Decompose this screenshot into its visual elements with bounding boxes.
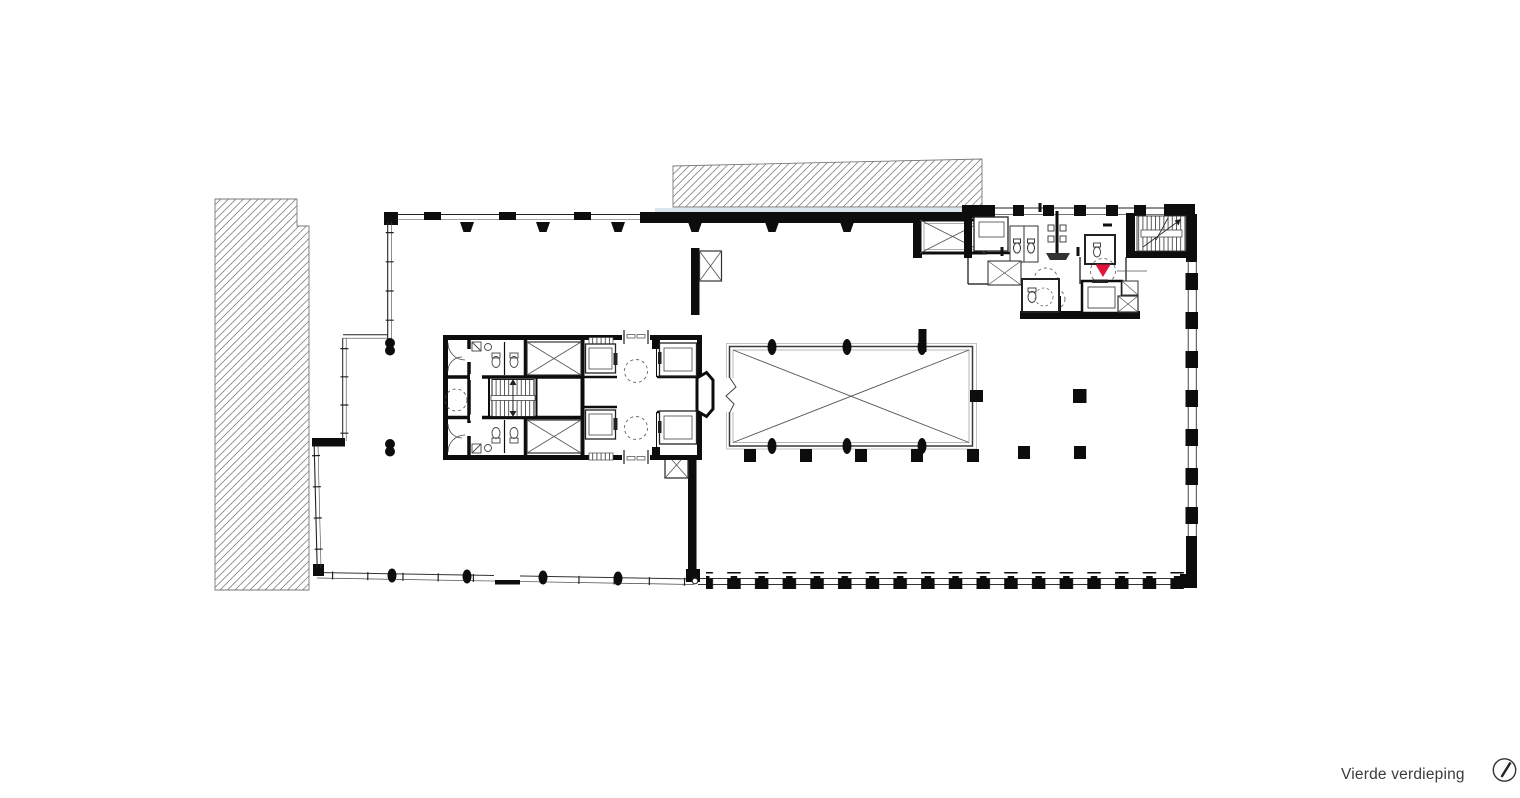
secondary-core (913, 203, 1190, 319)
east-facade (1186, 214, 1199, 588)
secondary-staircase (1126, 213, 1190, 258)
floor-plan-page: Vierde verdieping (0, 0, 1520, 798)
context-building-north-hatch (655, 159, 990, 214)
core-staircase (489, 378, 537, 417)
core-bay (697, 373, 713, 417)
west-facade (312, 222, 395, 568)
main-core (445, 330, 713, 464)
urinal-spine (1046, 211, 1070, 260)
context-building-west-hatch (215, 199, 309, 590)
floor-label: Vierde verdieping (1341, 766, 1465, 784)
facade-columns (460, 222, 929, 232)
atrium-void (725, 329, 983, 454)
east-facade-mullions (1186, 262, 1199, 536)
accessible-toilet (1022, 279, 1059, 312)
wc-room (1085, 235, 1115, 264)
entrance-threshold (495, 580, 520, 585)
south-facade (313, 564, 1196, 589)
wc-cells (1010, 226, 1038, 262)
south-colonnade (706, 572, 1184, 589)
secondary-elevator (1082, 280, 1122, 314)
north-arrow-icon (1490, 755, 1519, 785)
floor-plan-drawing (0, 0, 1520, 798)
entrance-marker-triangle (1096, 265, 1111, 278)
